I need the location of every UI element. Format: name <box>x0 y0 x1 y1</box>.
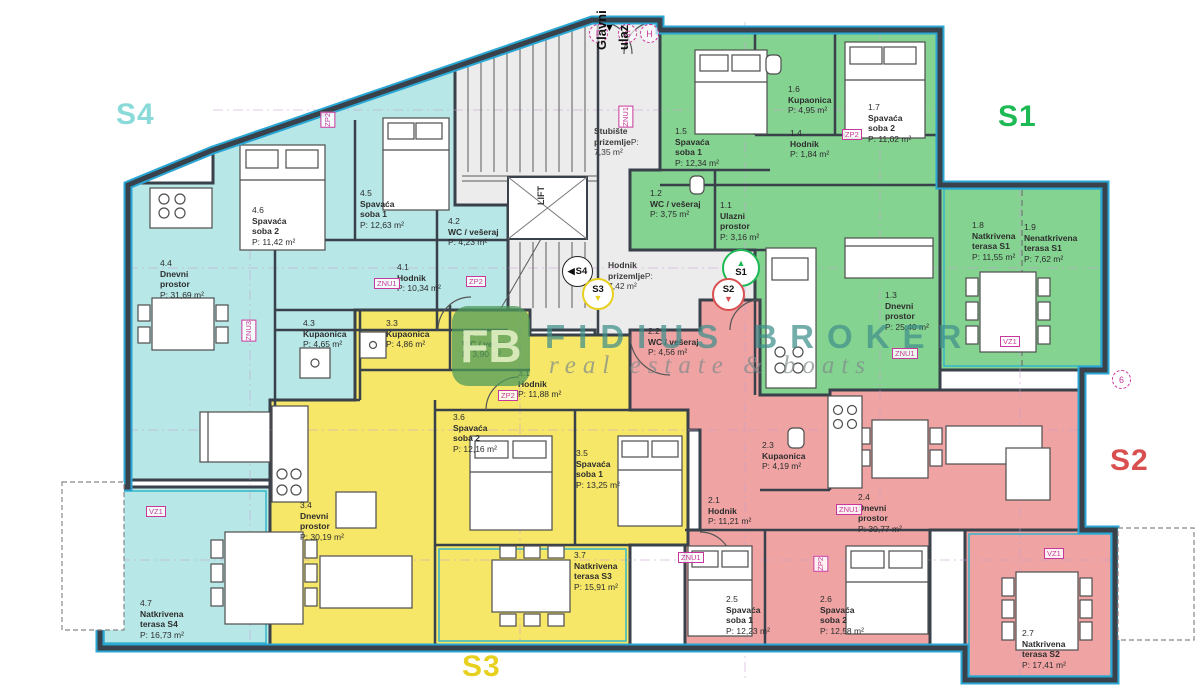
apartment-letter-s3: S3 <box>462 650 501 684</box>
room-label-3-4: 3.4Dnevni prostorP: 30,19 m² <box>300 500 352 543</box>
tag-zp2: ZP2 <box>842 129 862 140</box>
tag-vz1: VZ1 <box>1000 336 1020 347</box>
room-label-4-2: 4.2WC / vešerajP: 4,23 m² <box>448 216 506 248</box>
tag-vz1: VZ1 <box>146 506 166 517</box>
room-label-2-4: 2.4Dnevni prostorP: 30,77 m² <box>858 492 910 535</box>
room-label-1-5: 1.5Spavaća soba 1P: 12,34 m² <box>675 126 727 169</box>
kitchen-counter <box>272 406 308 502</box>
terrace-table <box>492 546 570 626</box>
tag-znu1: ZNU1 <box>836 504 862 515</box>
sofa <box>845 238 933 278</box>
shower <box>360 332 386 358</box>
room-label-3-2: 3.2WC / vešerajP: 3,90 m² <box>462 328 520 360</box>
tag-zp2: ZP2 <box>466 276 486 287</box>
room-label-4-7: 4.7Natkrivena terasa S4P: 16,73 m² <box>140 598 192 641</box>
tag-zp2: ZP2 <box>320 112 335 128</box>
dining-table <box>138 298 228 350</box>
room-label-1-3: 1.3Dnevni prostorP: 25,40 m² <box>885 290 937 333</box>
room-label-3-6: 3.6Spavaća soba 2P: 12,16 m² <box>453 412 505 455</box>
room-label-1-1: 1.1Ulazni prostorP: 3,16 m² <box>720 200 772 243</box>
lift-shaft <box>508 177 587 239</box>
grid-bubble-side: 6 <box>1112 370 1131 389</box>
stairs-label: Stubište prizemljeP: 7,35 m² <box>594 126 644 158</box>
room-label-2-3: 2.3KupaonicaP: 4,19 m² <box>762 440 814 472</box>
room-label-1-2: 1.2WC / vešerajP: 3,75 m² <box>650 188 708 220</box>
tag-zp2: ZP2 <box>498 390 518 401</box>
badge-s3: S3▼ <box>582 278 614 310</box>
tag-znu3: ZNU3 <box>241 320 256 342</box>
room-label-4-3: 4.3KupaonicaP: 4,65 m² <box>303 318 355 350</box>
room-label-2-6: 2.6Spavaća soba 2P: 12,58 m² <box>820 594 872 637</box>
room-label-2-7: 2.7Natkrivena terasa S2P: 17,41 m² <box>1022 628 1077 671</box>
room-label-4-6: 4.6Spavaća soba 2P: 11,42 m² <box>252 205 304 248</box>
room-label-3-7: 3.7Natkrivena terasa S3P: 15,91 m² <box>574 550 629 593</box>
kitchen-counter <box>828 396 862 488</box>
grid-bubble-h: H <box>640 24 659 43</box>
terrace-table <box>211 532 317 624</box>
main-entrance-label-word2: ulaz <box>616 0 631 50</box>
tag-znu1: ZNU1 <box>618 106 633 128</box>
down-arrow-icon: ▼ <box>724 295 733 304</box>
room-label-3-1: 3.1HodnikP: 11,88 m² <box>518 368 570 400</box>
shower <box>300 348 330 378</box>
kitchen-counter <box>150 188 212 228</box>
apartment-letter-s2: S2 <box>1110 444 1149 478</box>
entrance-arrow-icon: ▼ <box>604 22 615 34</box>
room-label-4-5: 4.5Spavaća soba 1P: 12,63 m² <box>360 188 412 231</box>
badge-s2: S2▼ <box>712 278 745 311</box>
apartment-letter-s4: S4 <box>116 98 155 132</box>
room-label-1-6: 1.6KupaonicaP: 4,95 m² <box>788 84 840 116</box>
room-label-2-5: 2.5Spavaća soba 1P: 12,23 m² <box>726 594 778 637</box>
tag-znu1: ZNU1 <box>678 552 704 563</box>
floor-plan: 4.1HodnikP: 10,34 m² 4.2WC / vešerajP: 4… <box>0 0 1200 696</box>
bed <box>695 50 767 134</box>
lift-label: LIFT <box>536 186 546 205</box>
room-label-1-8: 1.8Natkrivena terasa S1P: 11,55 m² <box>972 220 1027 263</box>
room-label-1-9: 1.9Nenatkrivena terasa S1P: 7,62 m² <box>1024 222 1088 265</box>
tag-vz1: VZ1 <box>1044 548 1064 559</box>
tag-zp2: ZP2 <box>813 556 828 572</box>
down-arrow-icon: ▼ <box>594 294 603 303</box>
room-label-4-4: 4.4Dnevni prostorP: 31,69 m² <box>160 258 212 301</box>
tag-znu1: ZNU1 <box>892 348 918 359</box>
room-label-3-3: 3.3KupaonicaP: 4,86 m² <box>386 318 438 350</box>
left-arrow-icon: ◀ <box>568 267 575 276</box>
apartment-letter-s1: S1 <box>998 100 1037 134</box>
kitchen-counter <box>766 248 816 388</box>
room-label-4-1: 4.1HodnikP: 10,34 m² <box>397 262 449 294</box>
sofa <box>200 412 270 462</box>
ground-hall-label: Hodnik prizemljeP: 7,42 m² <box>608 260 658 292</box>
room-label-2-2: 2.2WC / vešerajP: 4,56 m² <box>648 326 706 358</box>
toilet <box>766 55 781 74</box>
room-label-1-7: 1.7Spavaća soba 2P: 11,02 m² <box>868 102 920 145</box>
tag-znu1: ZNU1 <box>374 278 400 289</box>
room-label-1-4: 1.4HodnikP: 1,84 m² <box>790 128 848 160</box>
room-label-3-5: 3.5Spavaća soba 1P: 13,25 m² <box>576 448 628 491</box>
room-label-2-1: 2.1HodnikP: 11,21 m² <box>708 495 760 527</box>
